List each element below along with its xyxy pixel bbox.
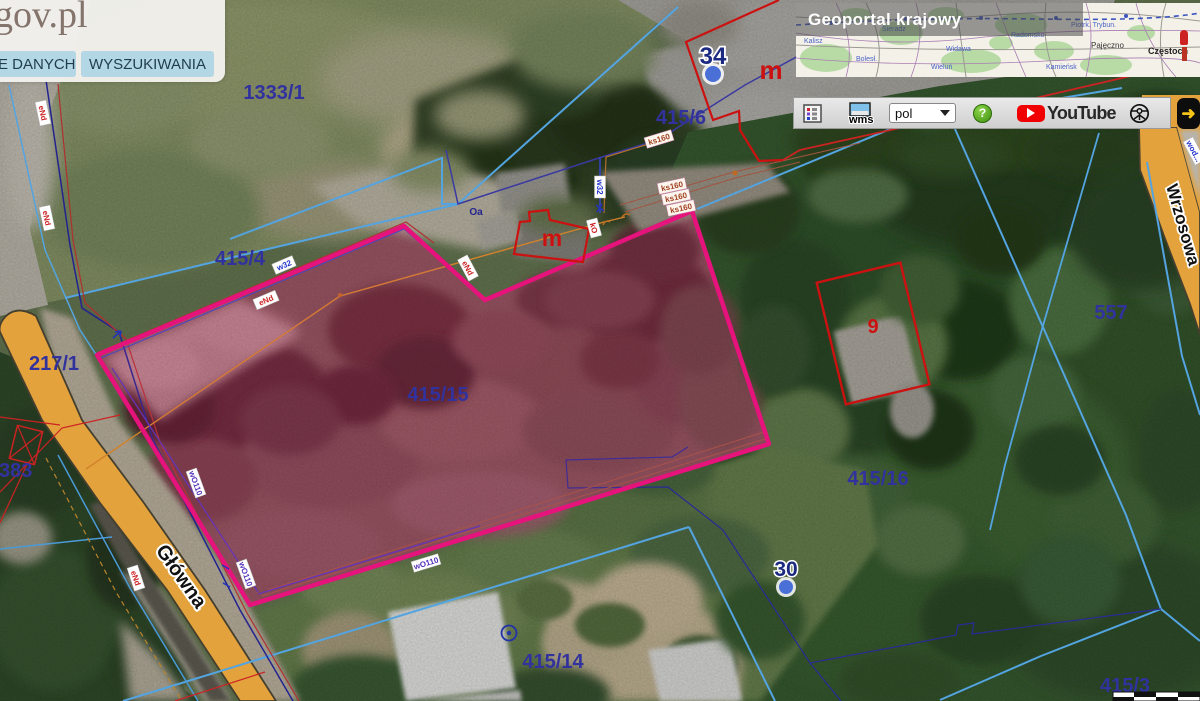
svg-text:415/14: 415/14 (522, 651, 584, 673)
svg-text:383: 383 (0, 460, 32, 482)
svg-text:415/15: 415/15 (407, 384, 468, 406)
svg-text:m: m (542, 225, 562, 251)
svg-text:415/16: 415/16 (847, 468, 908, 490)
svg-text:Oa: Oa (469, 207, 483, 218)
svg-text:415/4: 415/4 (215, 248, 266, 270)
svg-text:Bolesł.: Bolesł. (856, 56, 877, 63)
svg-text:Kalisz: Kalisz (804, 38, 823, 45)
svg-text:217/1: 217/1 (29, 353, 79, 375)
svg-text:30: 30 (774, 558, 797, 581)
svg-text:9: 9 (867, 316, 878, 338)
svg-text:Wieluń: Wieluń (931, 64, 953, 71)
svg-text:34: 34 (700, 43, 727, 70)
svg-text:w32: w32 (595, 178, 604, 195)
svg-text:Pajęczno: Pajęczno (1091, 41, 1124, 50)
svg-text:415/6: 415/6 (656, 107, 706, 129)
svg-text:Widawa: Widawa (946, 46, 971, 53)
svg-text:Kamieńsk: Kamieńsk (1046, 64, 1077, 71)
svg-text:wms: wms (848, 114, 873, 124)
svg-text:557: 557 (1094, 302, 1127, 324)
svg-text:1333/1: 1333/1 (243, 82, 304, 104)
svg-text:m: m (759, 55, 782, 85)
